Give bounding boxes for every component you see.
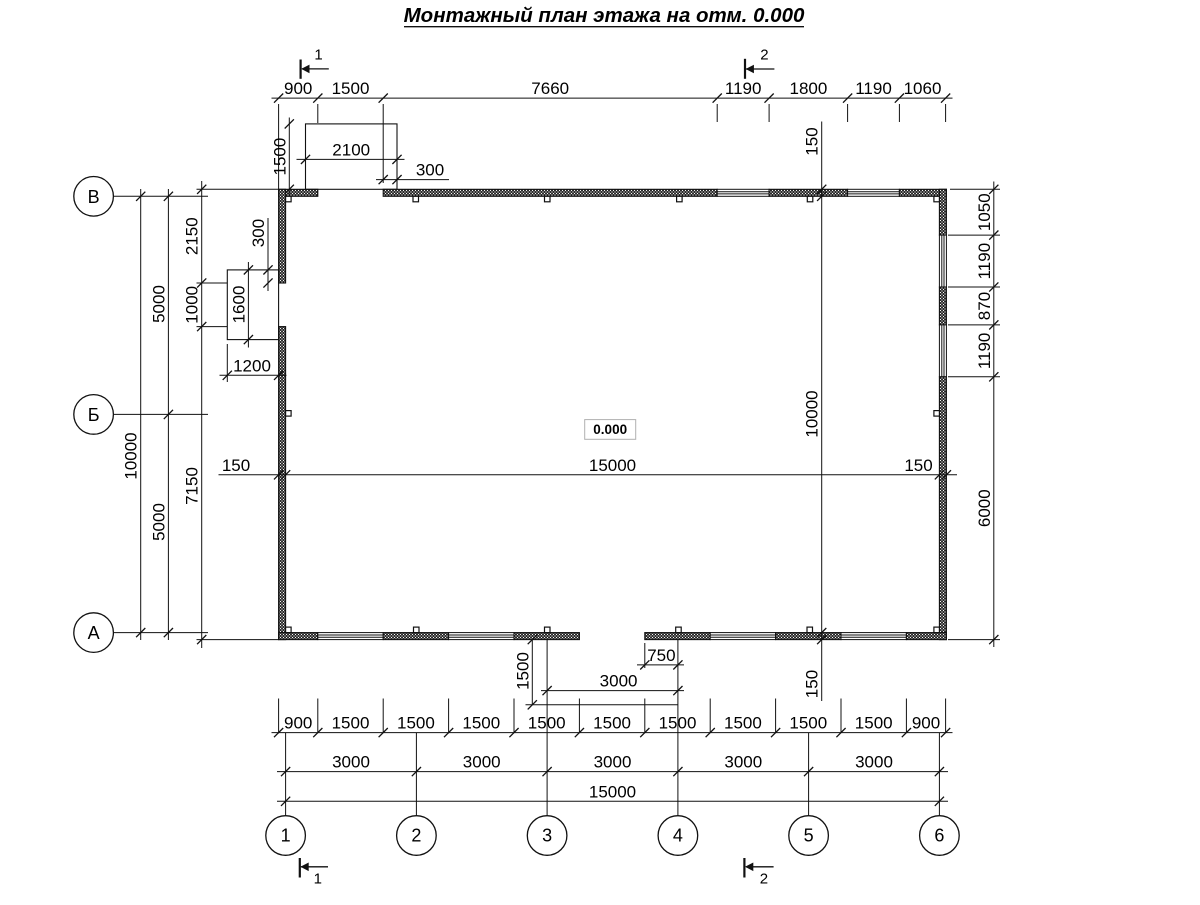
svg-text:5: 5 (804, 826, 814, 846)
svg-text:1500: 1500 (397, 714, 435, 733)
svg-text:150: 150 (222, 456, 250, 475)
svg-text:150: 150 (803, 127, 822, 155)
svg-text:1190: 1190 (975, 333, 994, 370)
svg-text:300: 300 (249, 219, 268, 247)
svg-text:6000: 6000 (975, 489, 994, 527)
svg-text:1500: 1500 (855, 714, 893, 733)
svg-text:2100: 2100 (332, 140, 370, 159)
svg-text:1: 1 (281, 826, 291, 846)
svg-text:1050: 1050 (975, 193, 994, 231)
svg-text:1060: 1060 (904, 79, 942, 98)
svg-text:900: 900 (912, 714, 940, 733)
svg-text:1500: 1500 (789, 714, 827, 733)
svg-text:А: А (88, 623, 100, 643)
svg-text:3000: 3000 (855, 753, 893, 772)
svg-text:2: 2 (411, 826, 421, 846)
svg-text:900: 900 (284, 79, 312, 98)
svg-text:1500: 1500 (593, 714, 631, 733)
svg-text:3: 3 (542, 826, 552, 846)
svg-text:300: 300 (416, 161, 444, 180)
svg-text:0.000: 0.000 (593, 422, 627, 437)
svg-text:В: В (88, 187, 100, 207)
svg-text:1500: 1500 (513, 652, 532, 690)
svg-text:3000: 3000 (594, 753, 632, 772)
svg-text:870: 870 (975, 292, 994, 320)
svg-text:1: 1 (314, 46, 322, 63)
svg-text:1500: 1500 (332, 79, 370, 98)
svg-text:1500: 1500 (462, 714, 500, 733)
svg-text:15000: 15000 (589, 782, 636, 801)
svg-text:1: 1 (314, 871, 322, 888)
svg-text:750: 750 (647, 646, 675, 665)
svg-text:3000: 3000 (463, 753, 501, 772)
svg-text:4: 4 (673, 826, 683, 846)
svg-text:Монтажный план этажа на отм. 0: Монтажный план этажа на отм. 0.000 (404, 4, 805, 27)
svg-text:1600: 1600 (229, 286, 248, 324)
svg-text:2150: 2150 (183, 217, 202, 255)
svg-text:1000: 1000 (183, 286, 202, 324)
svg-text:1190: 1190 (855, 79, 892, 98)
svg-text:10000: 10000 (122, 432, 141, 479)
svg-text:7660: 7660 (531, 79, 569, 98)
svg-text:6: 6 (934, 826, 944, 846)
svg-text:5000: 5000 (149, 503, 168, 541)
svg-text:150: 150 (803, 670, 822, 698)
svg-text:7150: 7150 (183, 467, 202, 505)
svg-text:5000: 5000 (149, 285, 168, 323)
svg-text:900: 900 (284, 714, 312, 733)
svg-text:1200: 1200 (233, 356, 271, 375)
svg-text:2: 2 (760, 47, 768, 64)
svg-text:1500: 1500 (270, 138, 289, 176)
svg-text:1800: 1800 (789, 79, 827, 98)
svg-text:3000: 3000 (600, 672, 638, 691)
svg-text:15000: 15000 (589, 456, 636, 475)
svg-text:3000: 3000 (724, 753, 762, 772)
svg-text:Б: Б (88, 405, 100, 425)
svg-text:1190: 1190 (975, 243, 994, 280)
svg-text:2: 2 (760, 871, 768, 888)
svg-text:10000: 10000 (803, 390, 822, 437)
svg-text:1500: 1500 (332, 714, 370, 733)
svg-text:1500: 1500 (724, 714, 762, 733)
svg-text:3000: 3000 (332, 753, 370, 772)
svg-text:150: 150 (904, 456, 932, 475)
svg-text:1190: 1190 (725, 79, 762, 98)
